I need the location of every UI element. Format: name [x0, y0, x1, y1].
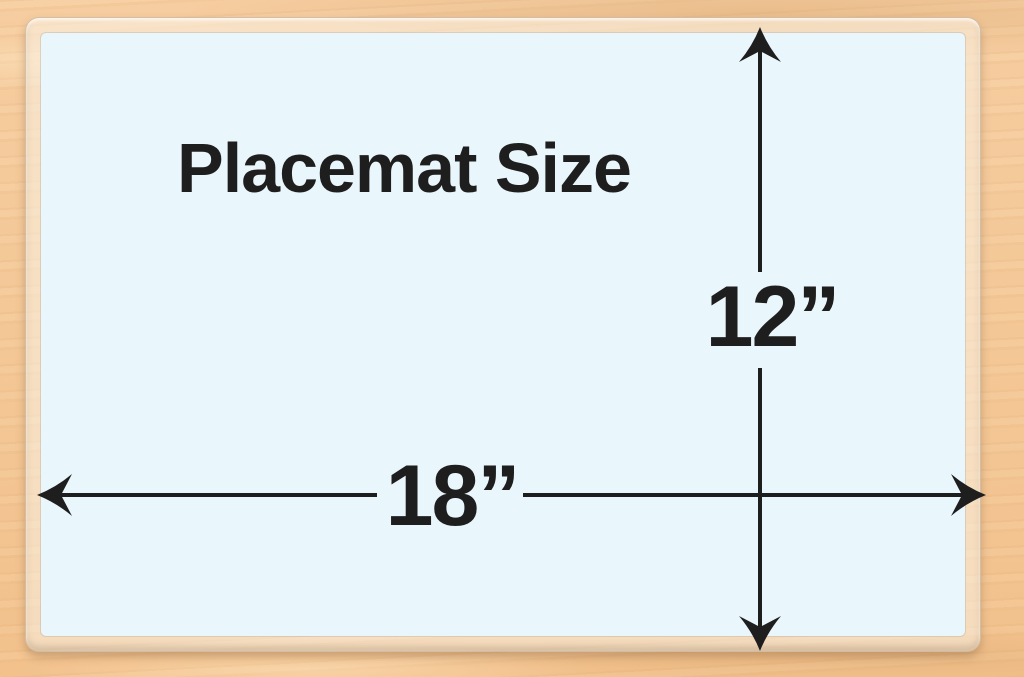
width-dimension-label: 18” — [386, 453, 519, 539]
height-dimension-label: 12” — [706, 274, 839, 360]
wood-table-background: Placemat Size 12” 18” — [0, 0, 1024, 677]
page-title: Placemat Size — [177, 133, 631, 203]
